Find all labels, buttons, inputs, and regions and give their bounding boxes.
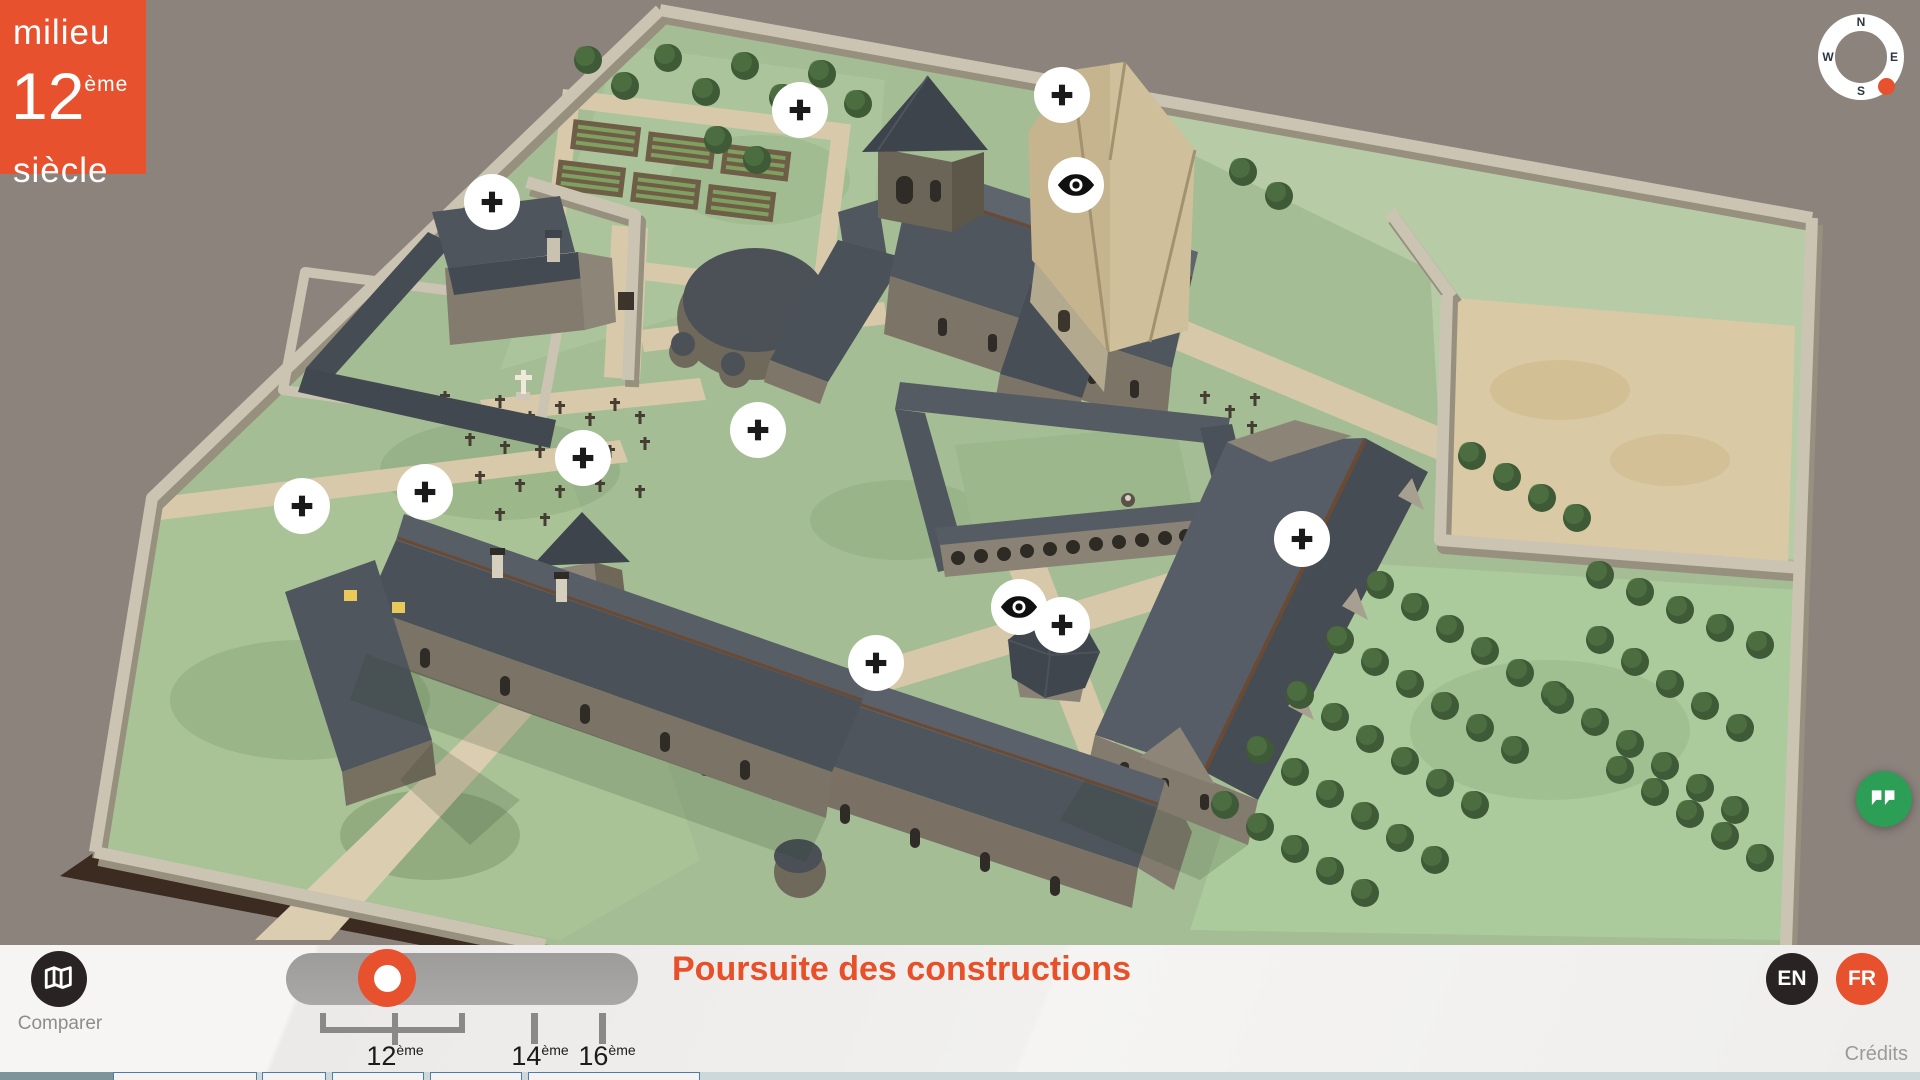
poi-plus-marker[interactable] bbox=[1034, 67, 1090, 123]
bottom-strip bbox=[0, 1072, 1920, 1080]
bottom-strip-cell bbox=[332, 1072, 424, 1080]
compass[interactable]: N E S W bbox=[1818, 14, 1904, 100]
compass-south: S bbox=[1854, 84, 1868, 98]
bottom-strip-cell bbox=[262, 1072, 326, 1080]
timeline-label-12[interactable]: 12ème bbox=[345, 1041, 445, 1072]
compass-north: N bbox=[1854, 15, 1868, 29]
poi-layer bbox=[0, 0, 1920, 945]
map-icon bbox=[42, 962, 76, 996]
bottom-strip-cell bbox=[528, 1072, 700, 1080]
poi-plus-marker[interactable] bbox=[1034, 597, 1090, 653]
compare-label: Comparer bbox=[4, 1013, 116, 1035]
credits-link[interactable]: Crédits bbox=[1845, 1043, 1908, 1066]
language-button-en[interactable]: EN bbox=[1766, 953, 1818, 1005]
poi-plus-marker[interactable] bbox=[772, 82, 828, 138]
timeline-tick-16 bbox=[599, 1013, 606, 1044]
poi-plus-marker[interactable] bbox=[464, 174, 520, 230]
poi-plus-marker[interactable] bbox=[274, 478, 330, 534]
compare-button[interactable] bbox=[31, 951, 87, 1007]
bottom-strip-cell bbox=[430, 1072, 522, 1080]
app-stage: milieu 12ème siècle N E S W Comparer bbox=[0, 0, 1920, 1080]
abbey-3d-viewport[interactable] bbox=[0, 0, 1920, 945]
poi-plus-marker[interactable] bbox=[848, 635, 904, 691]
compass-east: E bbox=[1887, 50, 1901, 64]
compass-west: W bbox=[1821, 50, 1835, 64]
poi-plus-marker[interactable] bbox=[1274, 511, 1330, 567]
poi-plus-marker[interactable] bbox=[397, 464, 453, 520]
poi-plus-marker[interactable] bbox=[555, 430, 611, 486]
timeline-track[interactable] bbox=[286, 953, 638, 1005]
compass-heading-dot bbox=[1878, 78, 1895, 95]
period-title: Poursuite des constructions bbox=[672, 950, 1131, 989]
bottom-strip-block bbox=[0, 1072, 113, 1080]
timeline-tick-14 bbox=[531, 1013, 538, 1044]
period-century: 12ème bbox=[11, 55, 146, 145]
poi-eye-marker[interactable] bbox=[1048, 157, 1104, 213]
period-suffix: siècle bbox=[13, 151, 146, 191]
timeline-knob-center bbox=[374, 965, 401, 992]
timeline-knob[interactable] bbox=[358, 949, 416, 1007]
period-prefix: milieu bbox=[13, 13, 146, 53]
quote-button[interactable] bbox=[1856, 771, 1912, 827]
language-button-fr[interactable]: FR bbox=[1836, 953, 1888, 1005]
bottom-strip-cell bbox=[113, 1072, 257, 1080]
poi-plus-marker[interactable] bbox=[730, 402, 786, 458]
period-badge: milieu 12ème siècle bbox=[0, 0, 146, 174]
bottom-toolbar: Comparer 12ème 14ème 16ème Poursuite des… bbox=[0, 945, 1920, 1072]
quote-icon bbox=[1871, 789, 1897, 809]
timeline-label-16[interactable]: 16ème bbox=[557, 1041, 657, 1072]
